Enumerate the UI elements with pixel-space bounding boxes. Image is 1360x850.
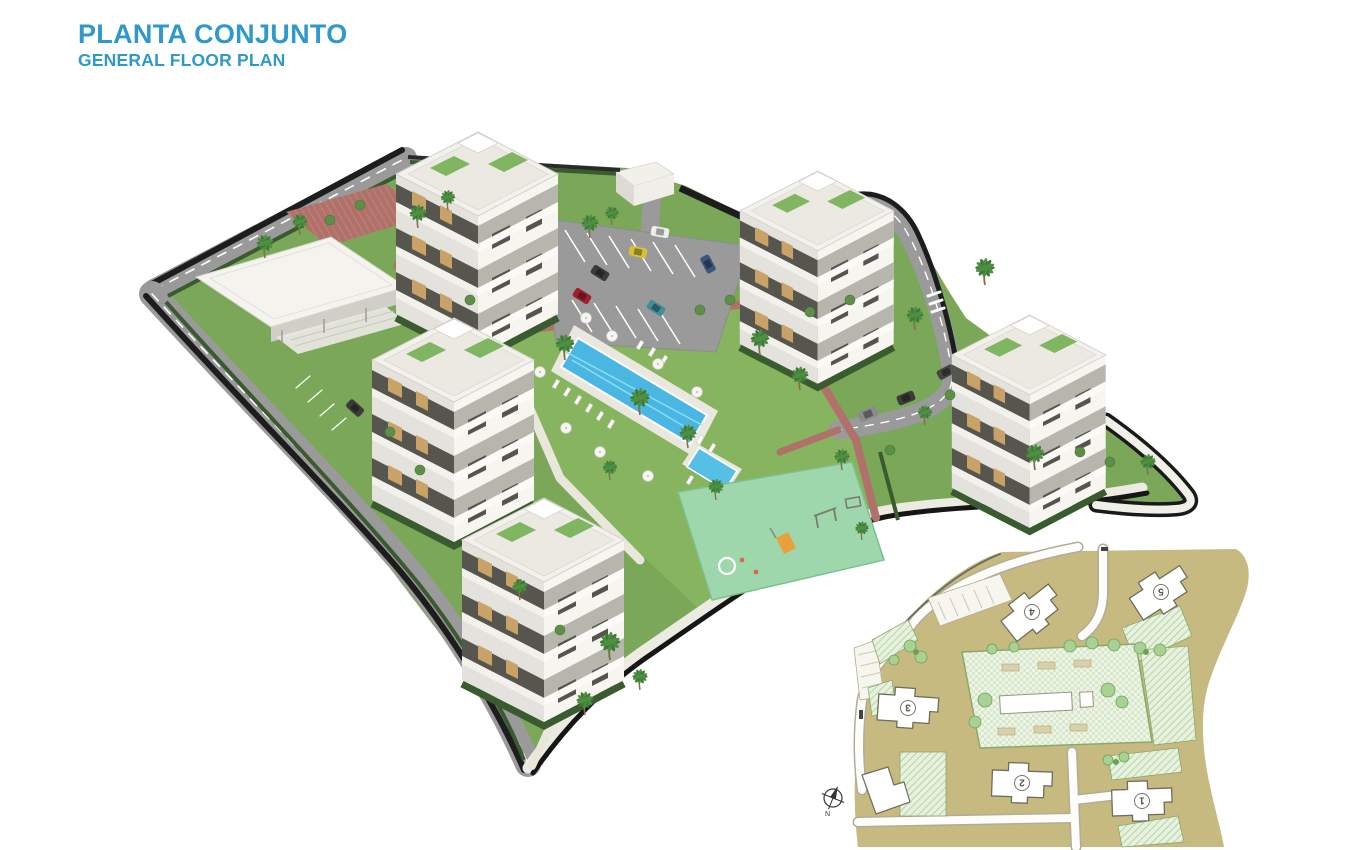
palm-tree-icon	[632, 669, 648, 690]
bush-icon	[885, 445, 895, 455]
building-block-bottom	[462, 498, 624, 726]
inset-pool-area	[962, 644, 1152, 748]
inset-pool	[1000, 692, 1073, 714]
building-block-mid-left	[372, 318, 534, 546]
inset-site-plan: 4 5 3 2 1 N	[817, 547, 1248, 847]
palm-tree-icon	[975, 258, 995, 285]
building-number-label: 3	[905, 702, 911, 713]
bush-icon	[415, 465, 425, 475]
page-subtitle: GENERAL FLOOR PLAN	[78, 50, 348, 72]
bush-icon	[385, 427, 395, 437]
bush-icon	[725, 295, 735, 305]
bush-icon	[845, 295, 855, 305]
compass-icon: N	[817, 782, 848, 818]
bush-icon	[465, 295, 475, 305]
building-block-top-center	[740, 171, 894, 388]
building-number-label: 5	[1158, 586, 1164, 597]
building-block-east	[952, 315, 1106, 532]
inset-gate	[1101, 547, 1108, 551]
bush-icon	[325, 215, 335, 225]
bush-icon	[1075, 447, 1085, 457]
bush-icon	[945, 390, 955, 400]
page: PLANTA CONJUNTO GENERAL FLOOR PLAN	[0, 0, 1360, 850]
page-title: PLANTA CONJUNTO	[78, 20, 348, 50]
inset-gate	[859, 710, 863, 719]
title-block: PLANTA CONJUNTO GENERAL FLOOR PLAN	[78, 20, 348, 72]
bush-icon	[555, 625, 565, 635]
bush-icon	[805, 307, 815, 317]
bush-icon	[355, 200, 365, 210]
building-number-label: 4	[1029, 606, 1035, 617]
building-number-label: 1	[1139, 795, 1145, 806]
compass-north-label: N	[825, 811, 830, 818]
bush-icon	[695, 305, 705, 315]
building-number-label: 2	[1019, 777, 1025, 788]
site-illustration: 4 5 3 2 1 N	[0, 0, 1360, 850]
building-block-top-left	[396, 132, 558, 360]
bush-icon	[1105, 457, 1115, 467]
